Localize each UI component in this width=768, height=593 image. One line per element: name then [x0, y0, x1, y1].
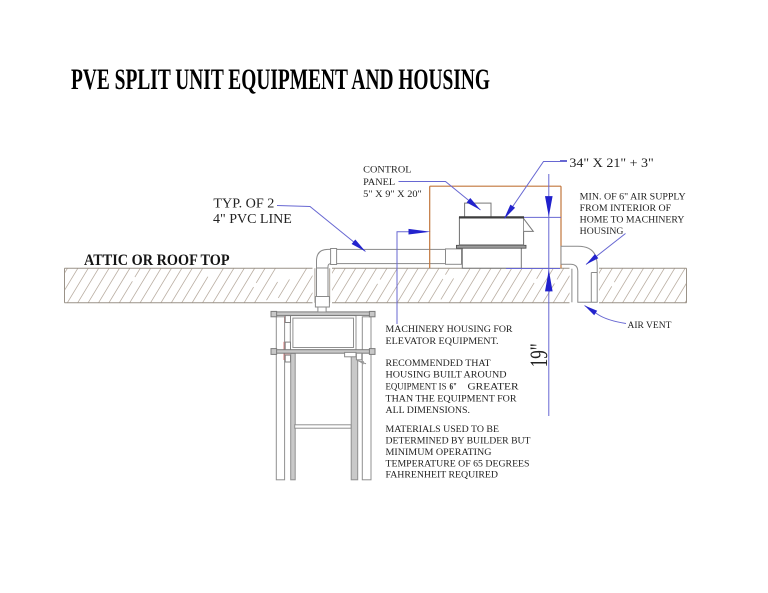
svg-text:DETERMINED BY BUILDER BUT: DETERMINED BY BUILDER BUT: [386, 436, 531, 446]
svg-text:ALL DIMENSIONS.: ALL DIMENSIONS.: [386, 405, 471, 415]
svg-text:EQUIPMENT IS: EQUIPMENT IS: [386, 382, 447, 392]
svg-text:34" X 21" + 3": 34" X 21" + 3": [569, 155, 653, 170]
svg-text:FAHRENHEIT REQUIRED: FAHRENHEIT REQUIRED: [386, 470, 499, 480]
svg-text:FROM INTERIOR OF: FROM INTERIOR OF: [580, 204, 671, 214]
svg-text:19": 19": [526, 343, 553, 367]
svg-text:AIR VENT: AIR VENT: [628, 321, 672, 331]
svg-text:5" X 9" X 20": 5" X 9" X 20": [363, 190, 422, 200]
svg-text:HOUSING: HOUSING: [580, 227, 624, 237]
svg-text:RECOMMENDED THAT: RECOMMENDED THAT: [386, 358, 491, 368]
svg-text:TYP. OF 2: TYP. OF 2: [213, 195, 274, 210]
svg-text:MINIMUM OPERATING: MINIMUM OPERATING: [386, 447, 492, 457]
svg-text:MACHINERY HOUSING FOR: MACHINERY HOUSING FOR: [386, 324, 514, 334]
svg-text:PANEL: PANEL: [363, 178, 395, 188]
svg-text:ELEVATOR EQUIPMENT.: ELEVATOR EQUIPMENT.: [386, 336, 499, 346]
svg-text:4" PVC LINE: 4" PVC LINE: [213, 211, 292, 226]
svg-text:CONTROL: CONTROL: [363, 166, 411, 176]
svg-text:HOUSING BUILT AROUND: HOUSING BUILT AROUND: [386, 370, 507, 380]
svg-text:TEMPERATURE OF 65 DEGREES: TEMPERATURE OF 65 DEGREES: [386, 458, 530, 468]
svg-text:THAN THE EQUIPMENT FOR: THAN THE EQUIPMENT FOR: [386, 393, 518, 403]
svg-text:GREATER: GREATER: [468, 382, 520, 392]
svg-text:HOME TO MACHINERY: HOME TO MACHINERY: [580, 216, 685, 226]
svg-text:ATTIC OR ROOF TOP: ATTIC OR ROOF TOP: [84, 252, 230, 269]
svg-text:PVE SPLIT UNIT EQUIPMENT AND H: PVE SPLIT UNIT EQUIPMENT AND HOUSING: [71, 63, 490, 96]
svg-text:6": 6": [450, 382, 458, 392]
svg-text:MIN. OF 6" AIR SUPPLY: MIN. OF 6" AIR SUPPLY: [580, 193, 686, 203]
svg-text:MATERIALS USED TO BE: MATERIALS USED TO BE: [386, 424, 500, 434]
